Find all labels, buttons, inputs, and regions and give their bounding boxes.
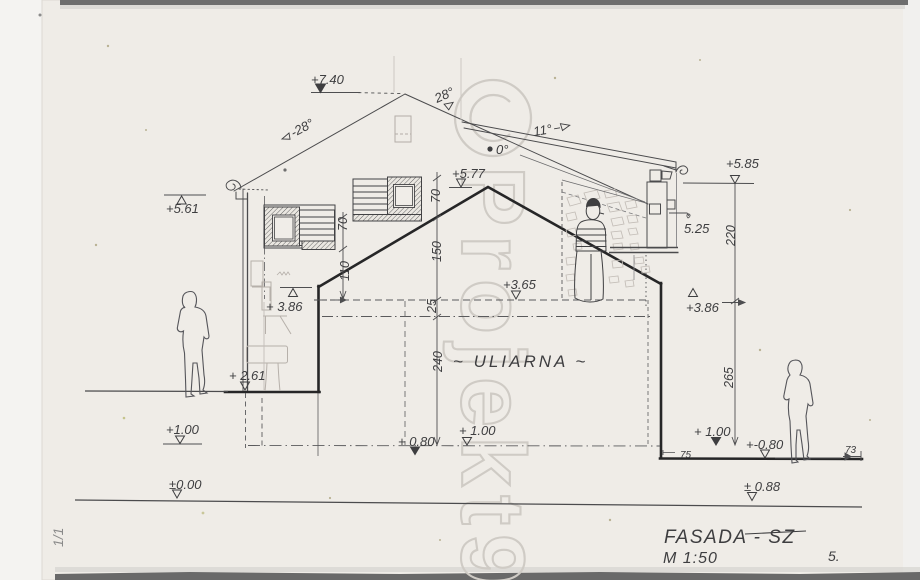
svg-text:220: 220 bbox=[724, 225, 738, 247]
svg-text:+7.40: +7.40 bbox=[311, 72, 345, 87]
svg-text:+3.65: +3.65 bbox=[503, 277, 537, 292]
svg-text:M 1:50: M 1:50 bbox=[663, 550, 718, 567]
svg-text:+5.77: +5.77 bbox=[452, 166, 486, 181]
svg-text:73: 73 bbox=[845, 445, 857, 456]
svg-text:150: 150 bbox=[430, 241, 444, 262]
svg-text:5.25: 5.25 bbox=[684, 221, 710, 236]
svg-text:75: 75 bbox=[680, 450, 692, 461]
svg-text:0°: 0° bbox=[496, 142, 508, 157]
svg-text:110: 110 bbox=[338, 261, 352, 281]
svg-text:+1.00: +1.00 bbox=[166, 422, 200, 437]
svg-text:+ 1.00: + 1.00 bbox=[694, 424, 731, 439]
svg-text:+5.61: +5.61 bbox=[166, 201, 199, 216]
svg-text:+ 2.61: + 2.61 bbox=[229, 368, 266, 383]
svg-text:25: 25 bbox=[425, 299, 439, 314]
svg-text:+5.85: +5.85 bbox=[726, 156, 760, 171]
svg-text:+-0.80: +-0.80 bbox=[746, 437, 784, 452]
svg-text:FASADA - SZ: FASADA - SZ bbox=[664, 527, 796, 548]
svg-text:~ ULIARNA ~: ~ ULIARNA ~ bbox=[453, 352, 588, 371]
svg-text:240: 240 bbox=[431, 351, 445, 373]
svg-text:Projekt92: Projekt92 bbox=[442, 166, 542, 580]
svg-text:1/1: 1/1 bbox=[50, 528, 66, 547]
svg-text:+3.86: +3.86 bbox=[686, 300, 720, 315]
svg-text:±0.00: ±0.00 bbox=[169, 477, 202, 492]
svg-text:+ 0.80: + 0.80 bbox=[398, 434, 435, 449]
svg-text:70: 70 bbox=[429, 189, 443, 203]
svg-text:11°: 11° bbox=[532, 121, 553, 139]
svg-text:+ 3.86: + 3.86 bbox=[266, 299, 303, 314]
svg-text:+ 1.00: + 1.00 bbox=[459, 423, 496, 438]
svg-text:5.: 5. bbox=[828, 548, 840, 564]
svg-text:70: 70 bbox=[336, 217, 350, 231]
svg-text:± 0.88: ± 0.88 bbox=[744, 479, 781, 494]
svg-text:265: 265 bbox=[722, 367, 736, 389]
